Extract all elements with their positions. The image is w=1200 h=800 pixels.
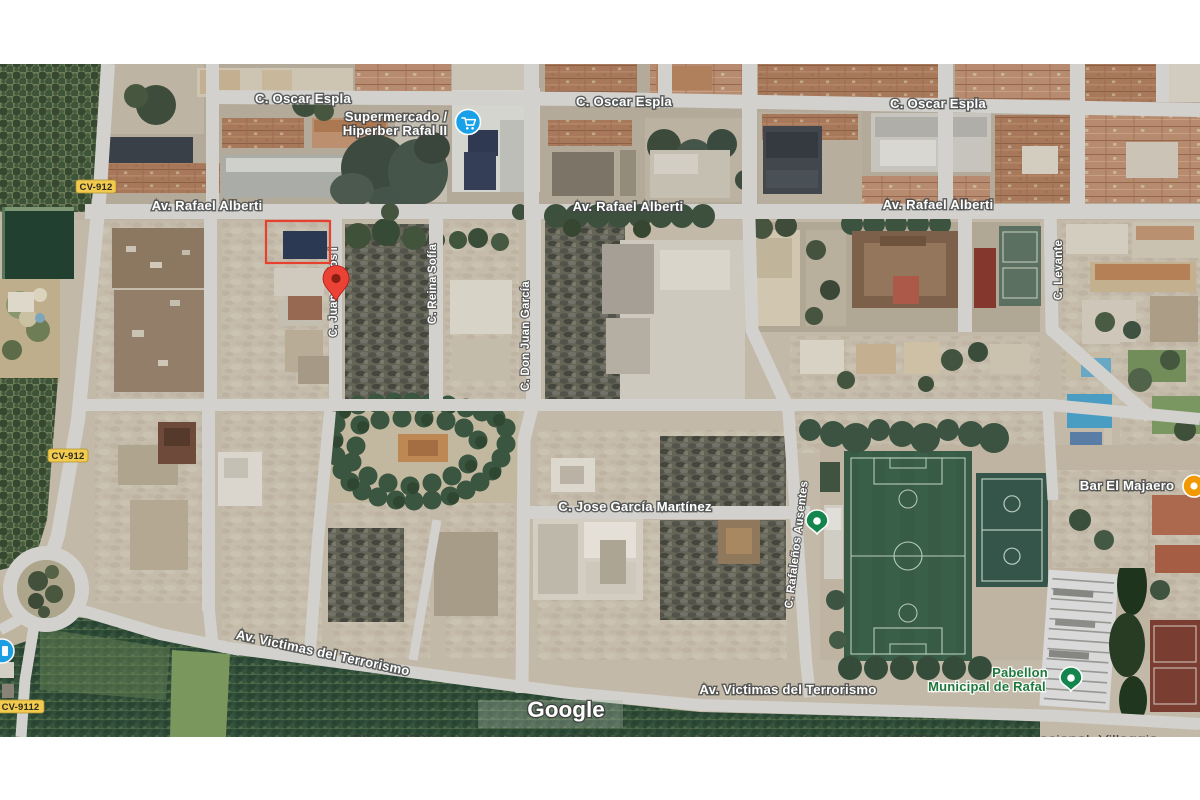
- svg-text:Av. Victimas del Terrorismo: Av. Victimas del Terrorismo: [699, 682, 876, 697]
- svg-text:C. Oscar Espla: C. Oscar Espla: [255, 91, 351, 106]
- svg-text:C. Oscar Espla: C. Oscar Espla: [890, 96, 986, 111]
- svg-text:Bar El Majaero: Bar El Majaero: [1080, 478, 1174, 493]
- svg-text:C. Reina Sofía: C. Reina Sofía: [427, 244, 439, 325]
- svg-text:Supermercado /: Supermercado /: [345, 109, 448, 124]
- svg-text:Municipal de Rafal: Municipal de Rafal: [928, 679, 1046, 694]
- svg-text:C. Don Juan García: C. Don Juan García: [520, 281, 532, 391]
- svg-text:Av. Rafael Alberti: Av. Rafael Alberti: [883, 197, 994, 212]
- svg-text:Pabellon: Pabellon: [992, 665, 1048, 680]
- svg-text:C. Levante: C. Levante: [1053, 240, 1065, 300]
- svg-text:Av. Rafael Alberti: Av. Rafael Alberti: [573, 199, 684, 214]
- svg-text:Hiperber Rafal II: Hiperber Rafal II: [343, 123, 448, 138]
- svg-text:C. Oscar Espla: C. Oscar Espla: [576, 94, 672, 109]
- svg-text:Google: Google: [527, 697, 605, 722]
- svg-text:Av. Rafael Alberti: Av. Rafael Alberti: [152, 198, 263, 213]
- svg-text:C. Jose García Martínez: C. Jose García Martínez: [558, 499, 712, 514]
